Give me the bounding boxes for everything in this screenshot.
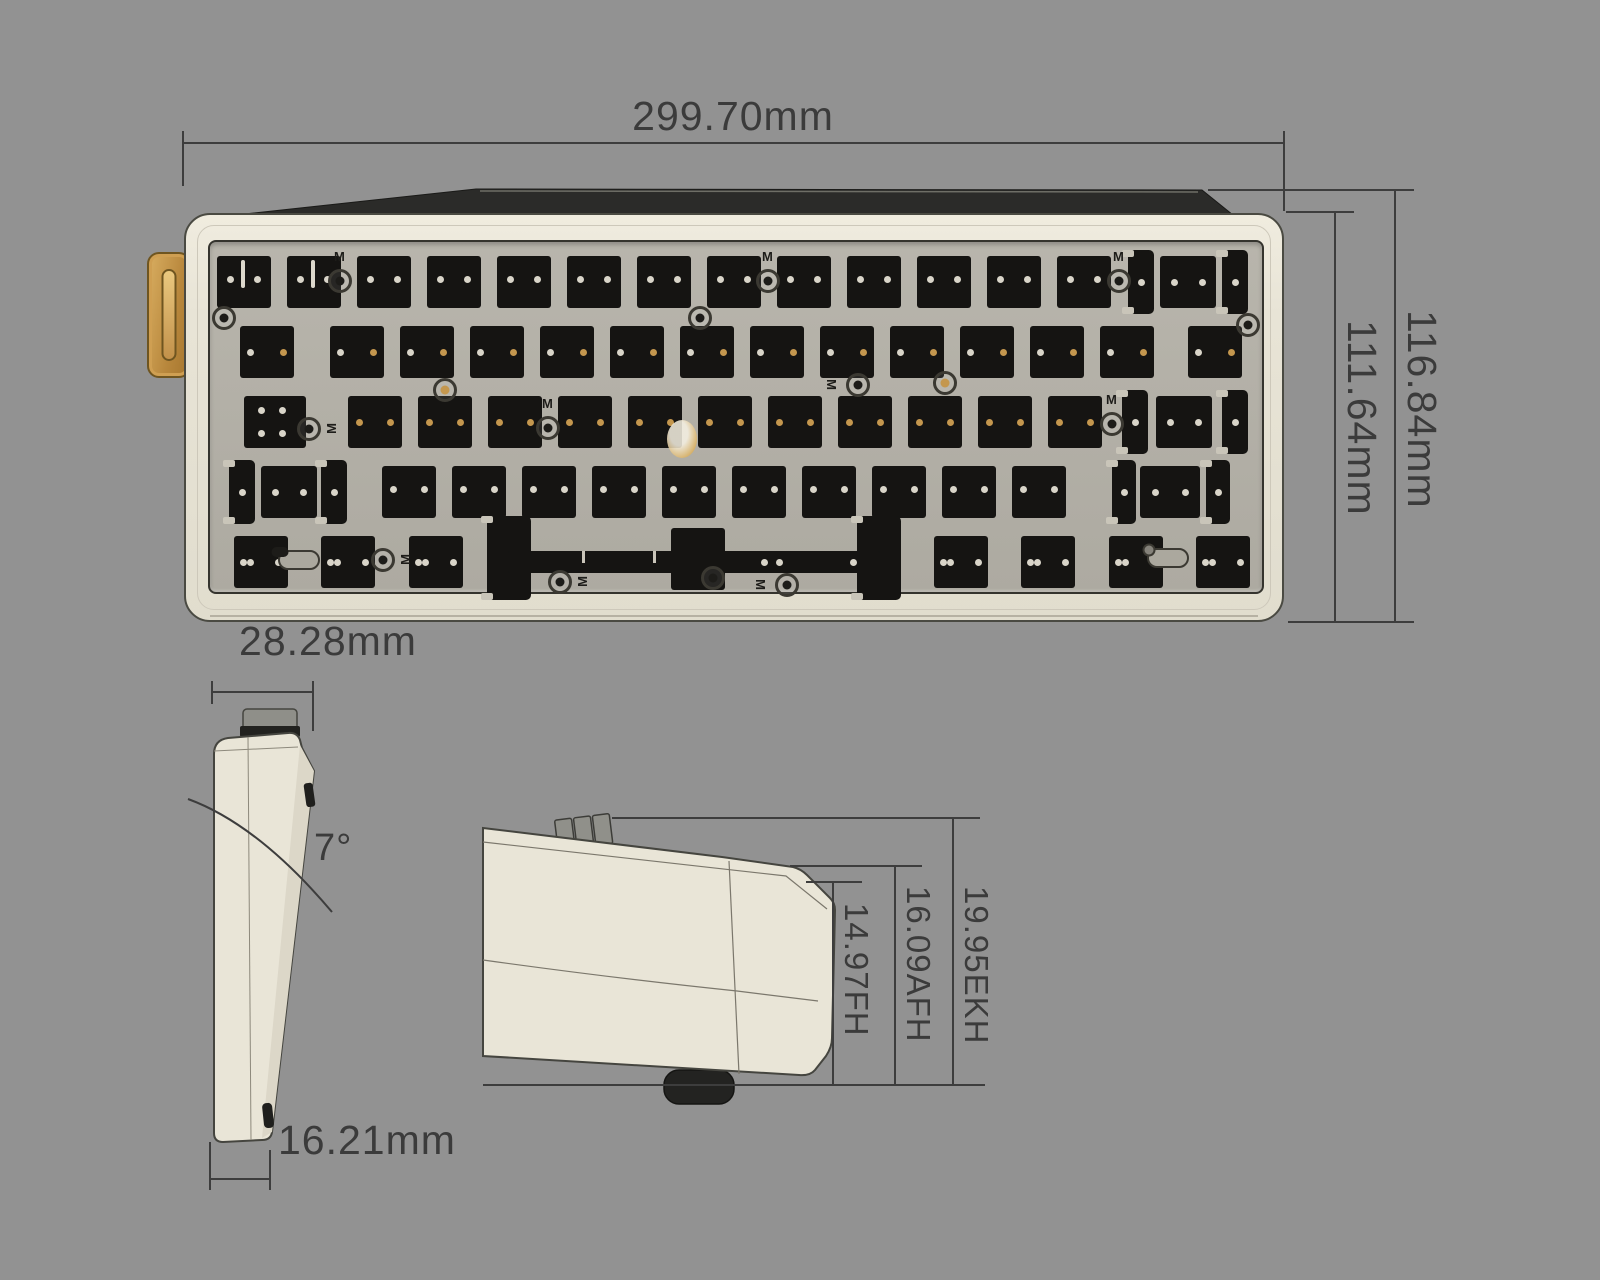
front-rubber-foot: [664, 1070, 734, 1104]
dim-inner-depth-label: 111.64mm: [1338, 320, 1385, 516]
dim-afh-label: 16.09AFH: [899, 886, 937, 1043]
dim-side-front-label: 16.21mm: [278, 1117, 456, 1164]
front-case-body: [483, 828, 835, 1075]
side-profile-view: [214, 709, 316, 1142]
gold-badge-slot: [162, 269, 177, 361]
typing-angle-label: 7°: [314, 827, 352, 870]
top-view-switch-plate: [208, 240, 1264, 594]
dim-side-top-label: 28.28mm: [228, 618, 428, 665]
dim-outer-depth-label: 116.84mm: [1398, 310, 1445, 509]
top-view-rear-strip: [235, 189, 1233, 215]
keyboard-dimension-drawing: MMMMMMMMMM 299.70mm 116.84mm 111.64mm 28…: [0, 0, 1600, 1280]
front-view: [483, 814, 835, 1104]
dim-top-width-label: 299.70mm: [383, 93, 1083, 140]
dim-fh-label: 14.97FH: [837, 903, 875, 1037]
dim-ekh-label: 19.95EKH: [957, 886, 995, 1044]
